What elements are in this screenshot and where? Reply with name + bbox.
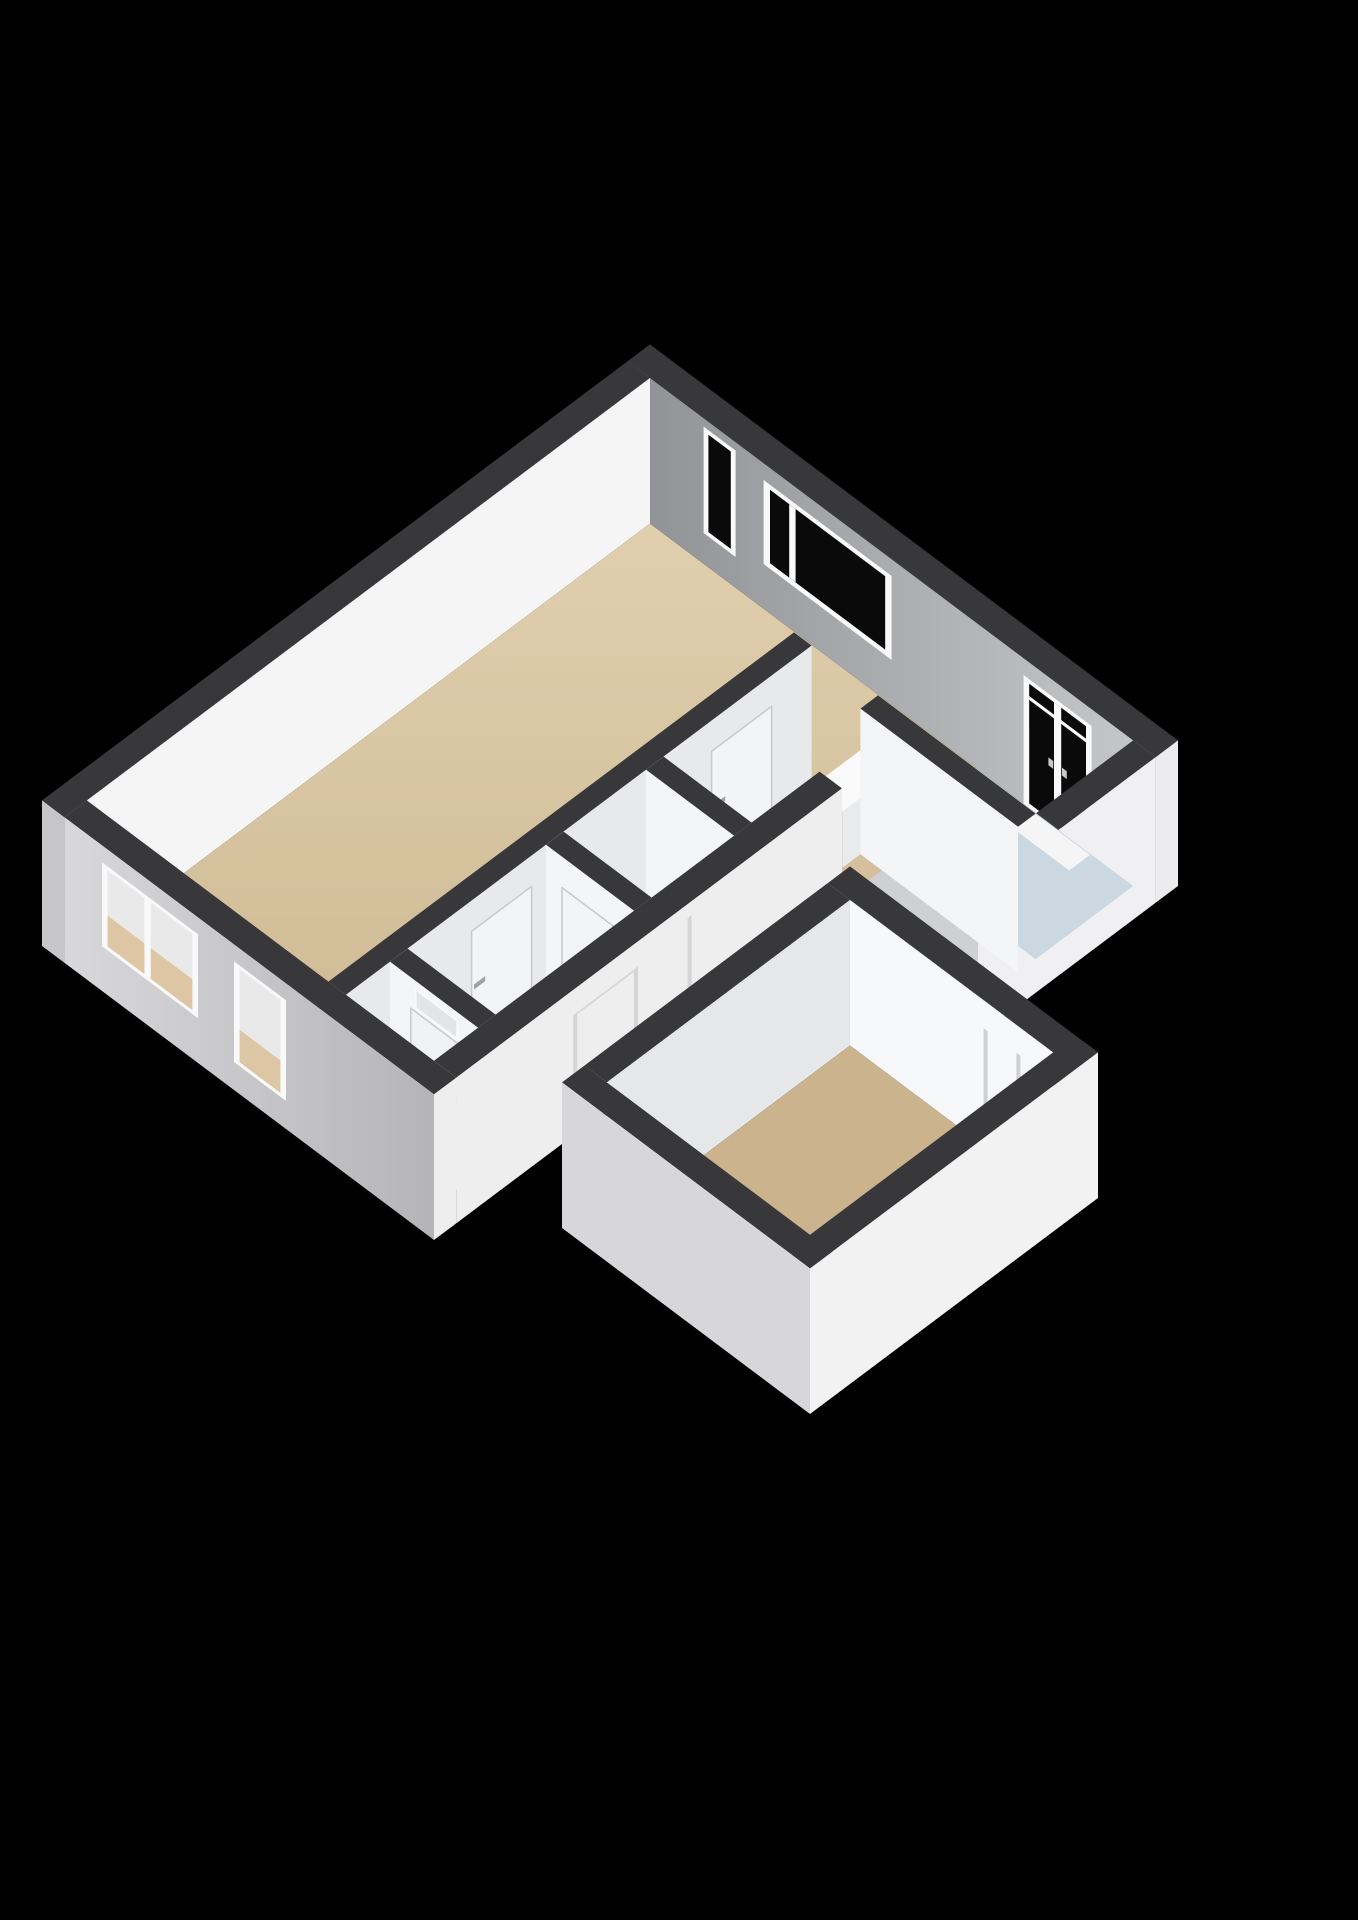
window-narrow-glass <box>708 435 730 549</box>
window-left-1-mullion <box>144 898 150 979</box>
back-left-wall-endcap <box>42 800 64 962</box>
front-left-wall-endcap <box>434 1078 456 1240</box>
floorplan-3d-render <box>0 0 1358 1920</box>
floorplan-3d-view <box>0 0 1358 1920</box>
back-right-wall-endcap <box>1156 740 1178 902</box>
window-large-mullion <box>789 504 795 582</box>
